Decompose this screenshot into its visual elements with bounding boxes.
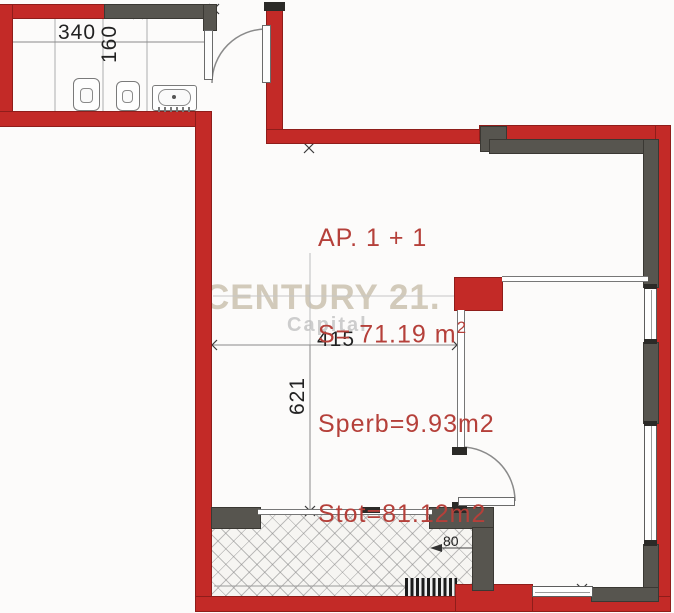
bottom-window (532, 586, 593, 597)
interior-partition-line (502, 276, 648, 282)
window-cap-3 (644, 421, 657, 426)
right-window-lower (644, 423, 657, 545)
entry-wall-cap (264, 2, 285, 11)
bottom-inner-wall (592, 588, 658, 601)
unit-area-stot: Stot=81.12m2 (318, 499, 495, 529)
top-inner-wall (490, 140, 658, 153)
top-wall-left-segment (267, 130, 489, 143)
unit-info-text: AP. 1 + 1 S= 71.19 m2 Sperb=9.93m2 Stot=… (318, 163, 495, 589)
window-cap-2 (644, 339, 657, 344)
unit-label: AP. 1 + 1 (318, 223, 495, 253)
entry-door-swing-arc (212, 29, 266, 83)
right-inner-wall-upper (644, 140, 658, 287)
balcony-wall-left (212, 508, 260, 528)
bathroom-left-wall (0, 5, 12, 126)
sink-drain (172, 95, 176, 99)
top-wall-right-segment (480, 126, 670, 140)
sink-pedestal (158, 107, 191, 112)
dim-label-160: 160 (98, 25, 130, 63)
unit-area-sperb: Sperb=9.93m2 (318, 409, 495, 439)
dim-label-621: 621 (286, 374, 318, 418)
entry-door-leaf (262, 25, 271, 83)
floor-plan: CENTURY 21. Capital (0, 0, 674, 613)
unit-area-total: S= 71.19 m2 (318, 313, 495, 349)
dim-label-340: 340 (58, 21, 96, 45)
entry-door-jamb-post (204, 30, 213, 80)
right-inner-wall-middle (644, 343, 658, 423)
bathroom-top-wall-gray (105, 5, 216, 18)
toilet-bowl (80, 88, 93, 103)
bathroom-bottom-wall (0, 112, 211, 126)
bidet-bowl (122, 90, 133, 103)
right-outer-wall (656, 126, 670, 611)
window-cap-4 (644, 540, 657, 546)
bathroom-top-wall-red (0, 5, 105, 18)
window-cap-1 (644, 284, 657, 289)
main-left-wall (196, 112, 211, 604)
right-window-upper (644, 287, 657, 343)
entry-door-jamb (204, 5, 216, 30)
